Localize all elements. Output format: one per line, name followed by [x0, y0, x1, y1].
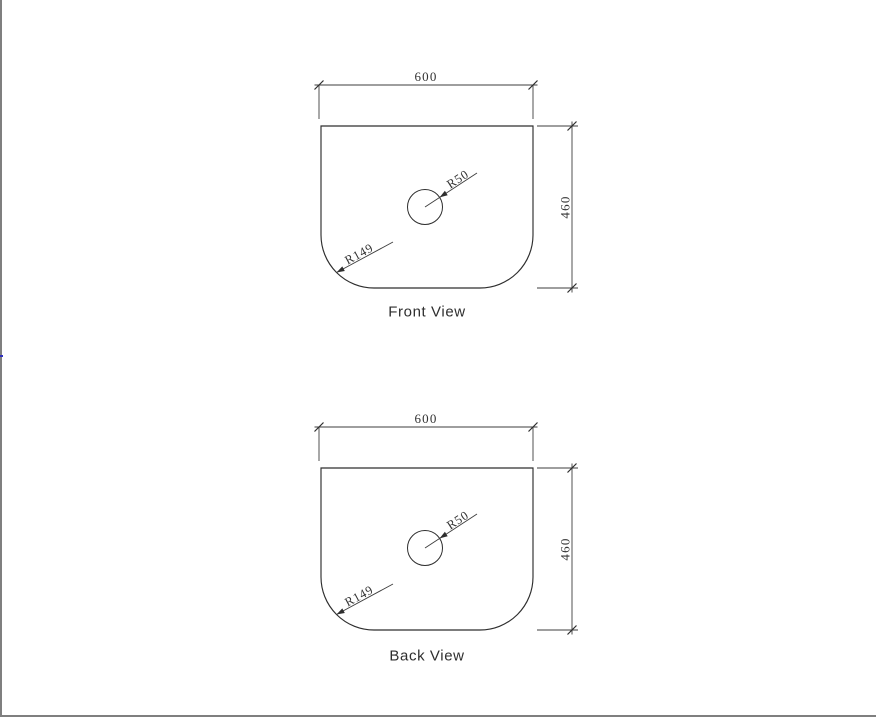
front-height-label: 460 — [558, 195, 573, 218]
sheet-edge-accent-mark — [0, 355, 3, 357]
leader-arrowhead — [337, 266, 345, 272]
back-view-drawing: 600 460 R50 R149 Back View — [300, 400, 590, 670]
back-view-title: Back View — [389, 648, 464, 665]
front-hole-radius-label: R50 — [444, 167, 471, 191]
leader-arrowhead — [440, 191, 448, 198]
front-height-dimension: 460 — [537, 122, 578, 293]
back-hole-radius-leader: R50 — [425, 508, 477, 548]
front-width-dimension: 600 — [315, 69, 538, 119]
front-view-drawing: 600 460 R50 R149 Front View — [300, 60, 590, 330]
back-width-label: 600 — [414, 411, 437, 426]
back-height-dimension: 460 — [537, 464, 578, 635]
front-corner-radius-leader: R149 — [337, 241, 394, 273]
back-height-label: 460 — [558, 537, 573, 560]
drawing-sheet: 600 460 R50 R149 Front View — [0, 0, 876, 717]
front-hole-radius-leader: R50 — [425, 167, 477, 207]
back-corner-radius-label: R149 — [342, 583, 375, 610]
back-corner-radius-leader: R149 — [337, 583, 394, 615]
back-hole-radius-label: R50 — [444, 508, 471, 532]
leader-arrowhead — [337, 608, 345, 614]
back-width-dimension: 600 — [315, 411, 538, 461]
sheet-bottom-edge-line — [0, 715, 876, 717]
sheet-left-edge-line — [0, 0, 2, 717]
front-view-title: Front View — [388, 304, 465, 321]
leader-arrowhead — [440, 532, 448, 539]
front-width-label: 600 — [414, 69, 437, 84]
front-corner-radius-label: R149 — [342, 241, 375, 268]
